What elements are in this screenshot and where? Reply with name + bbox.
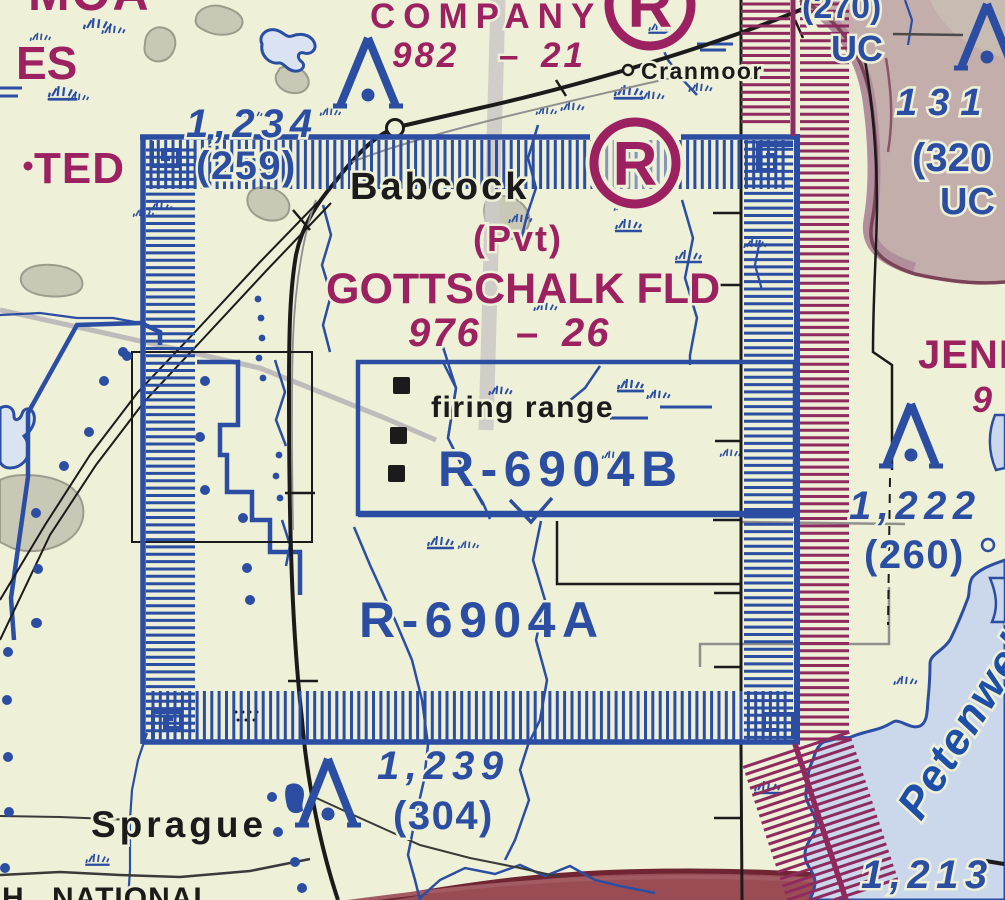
svg-text:976: 976 (408, 311, 481, 355)
svg-text:R: R (613, 130, 658, 199)
svg-text:(Pvt): (Pvt) (473, 218, 563, 259)
svg-text:NATIONAL: NATIONAL (52, 882, 213, 900)
svg-text:–: – (516, 311, 538, 355)
svg-text:firing range: firing range (431, 391, 614, 424)
svg-text:1,213: 1,213 (861, 853, 994, 897)
svg-text:1,222: 1,222 (849, 484, 982, 528)
svg-text:UC: UC (831, 28, 883, 69)
svg-text:(320: (320 (912, 136, 992, 180)
svg-text:(304): (304) (393, 794, 494, 838)
svg-text:1,234: 1,234 (186, 102, 319, 146)
svg-text:9: 9 (972, 379, 992, 420)
svg-text:UC: UC (940, 181, 995, 223)
svg-text:R-6904A: R-6904A (359, 592, 605, 648)
svg-text:R-6904B: R-6904B (438, 441, 684, 497)
svg-text:COMPANY: COMPANY (370, 0, 602, 36)
svg-text:26: 26 (561, 311, 611, 355)
svg-text:1,239: 1,239 (377, 744, 510, 788)
svg-text:JENN: JENN (918, 333, 1005, 377)
svg-text:(259): (259) (196, 144, 297, 188)
svg-text:Babcock: Babcock (350, 166, 529, 208)
svg-text:(260): (260) (864, 533, 965, 577)
svg-text:–: – (499, 36, 518, 75)
svg-text:ES: ES (16, 37, 77, 89)
svg-text:TED: TED (34, 144, 125, 193)
svg-text:982: 982 (392, 36, 459, 75)
svg-text:Cranmoor: Cranmoor (641, 58, 763, 84)
svg-text:H: H (2, 882, 24, 900)
svg-text:MOA: MOA (28, 0, 151, 21)
svg-text:Sprague: Sprague (91, 804, 267, 845)
svg-text:(270): (270) (802, 0, 881, 26)
svg-text:131: 131 (896, 82, 992, 124)
svg-text:GOTTSCHALK FLD: GOTTSCHALK FLD (326, 265, 720, 313)
svg-text:21: 21 (540, 36, 586, 75)
svg-text:R: R (628, 0, 673, 41)
